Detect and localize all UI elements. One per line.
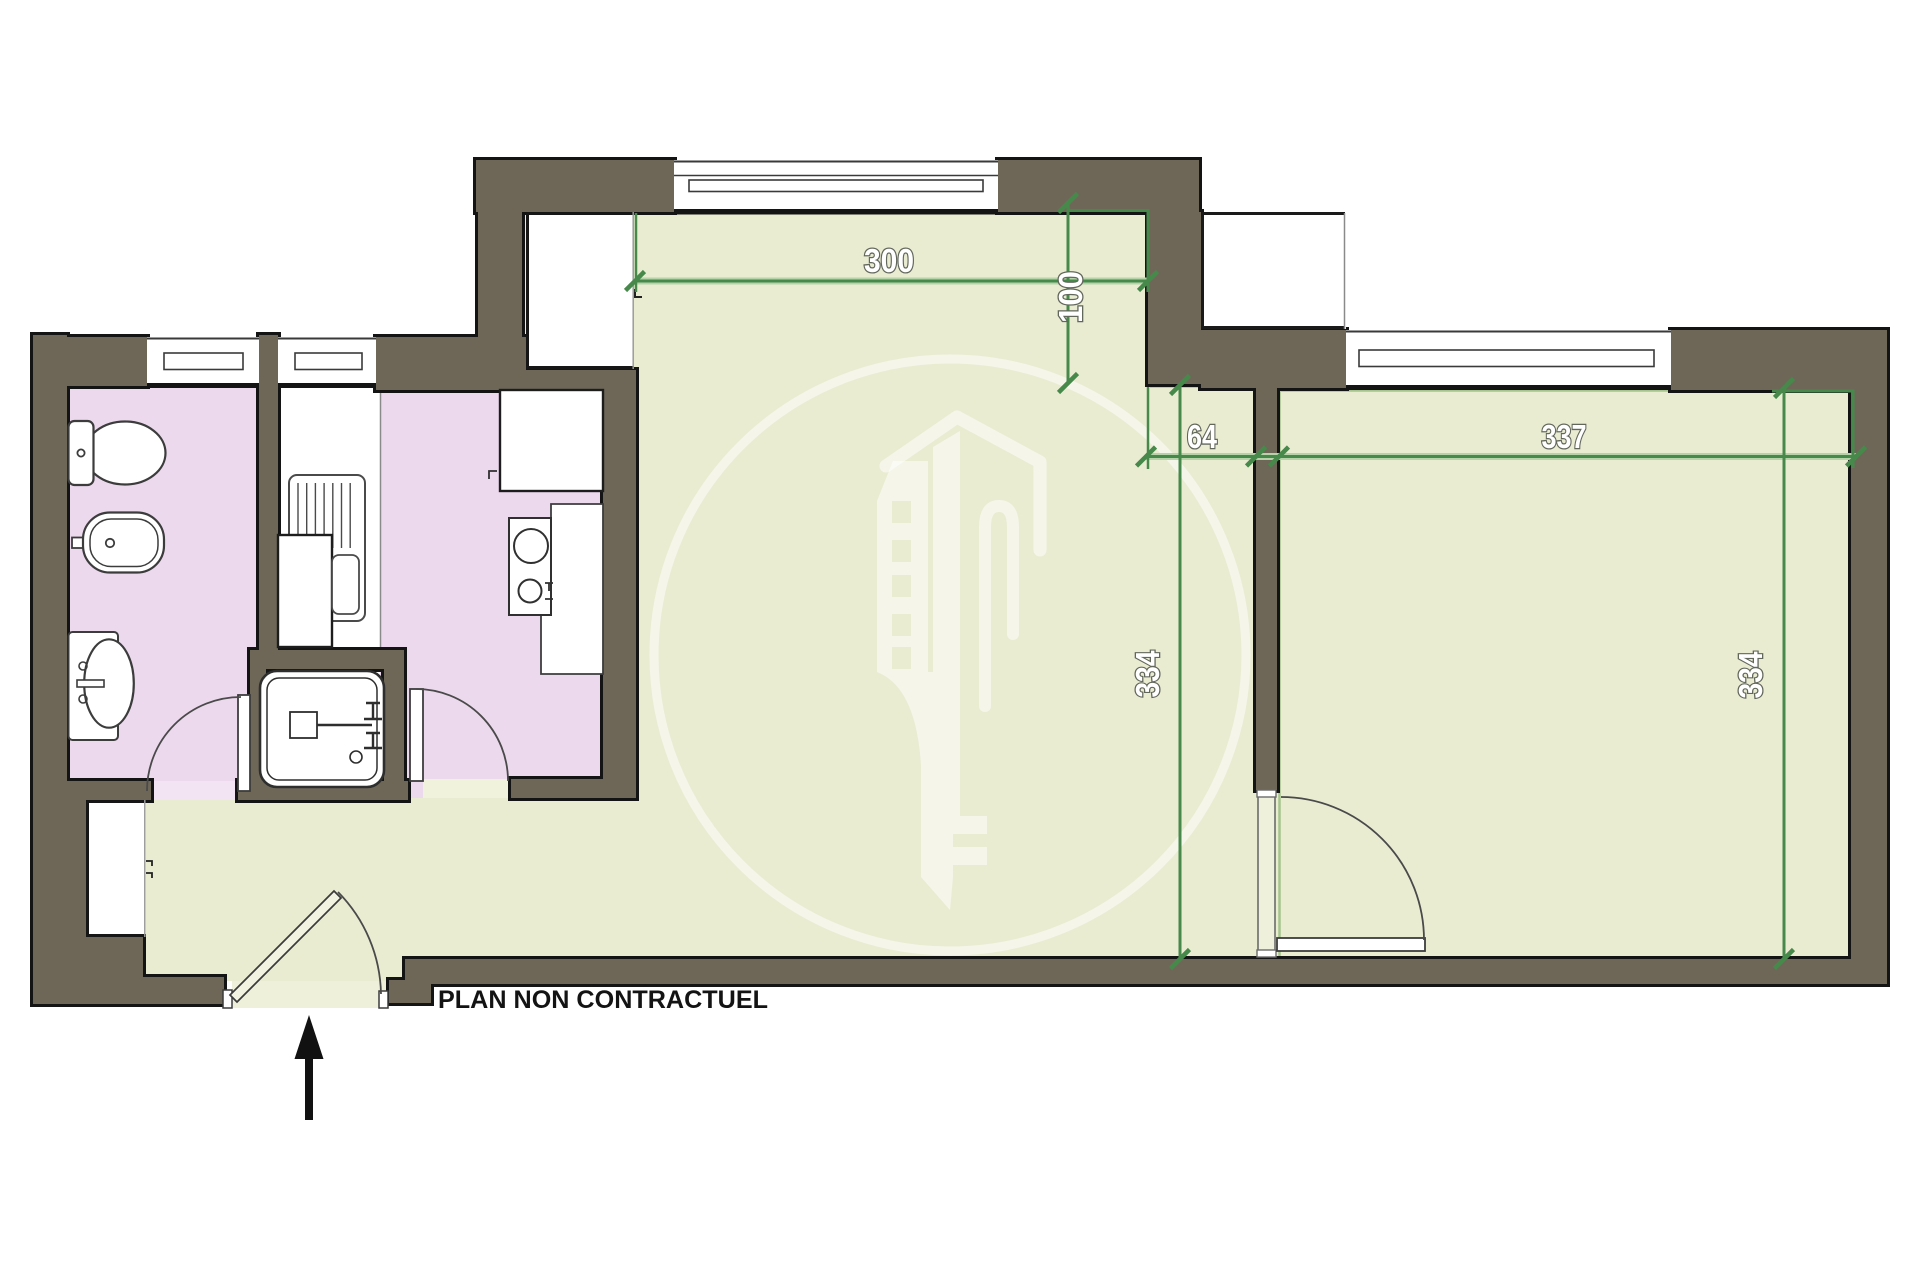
svg-text:334: 334 xyxy=(1732,651,1769,699)
svg-text:PLAN NON CONTRACTUEL: PLAN NON CONTRACTUEL xyxy=(438,986,768,1014)
svg-text:64: 64 xyxy=(1187,418,1218,455)
svg-text:100: 100 xyxy=(1052,271,1089,323)
svg-text:337: 337 xyxy=(1542,418,1587,455)
svg-text:300: 300 xyxy=(864,242,914,279)
svg-text:334: 334 xyxy=(1129,650,1166,698)
